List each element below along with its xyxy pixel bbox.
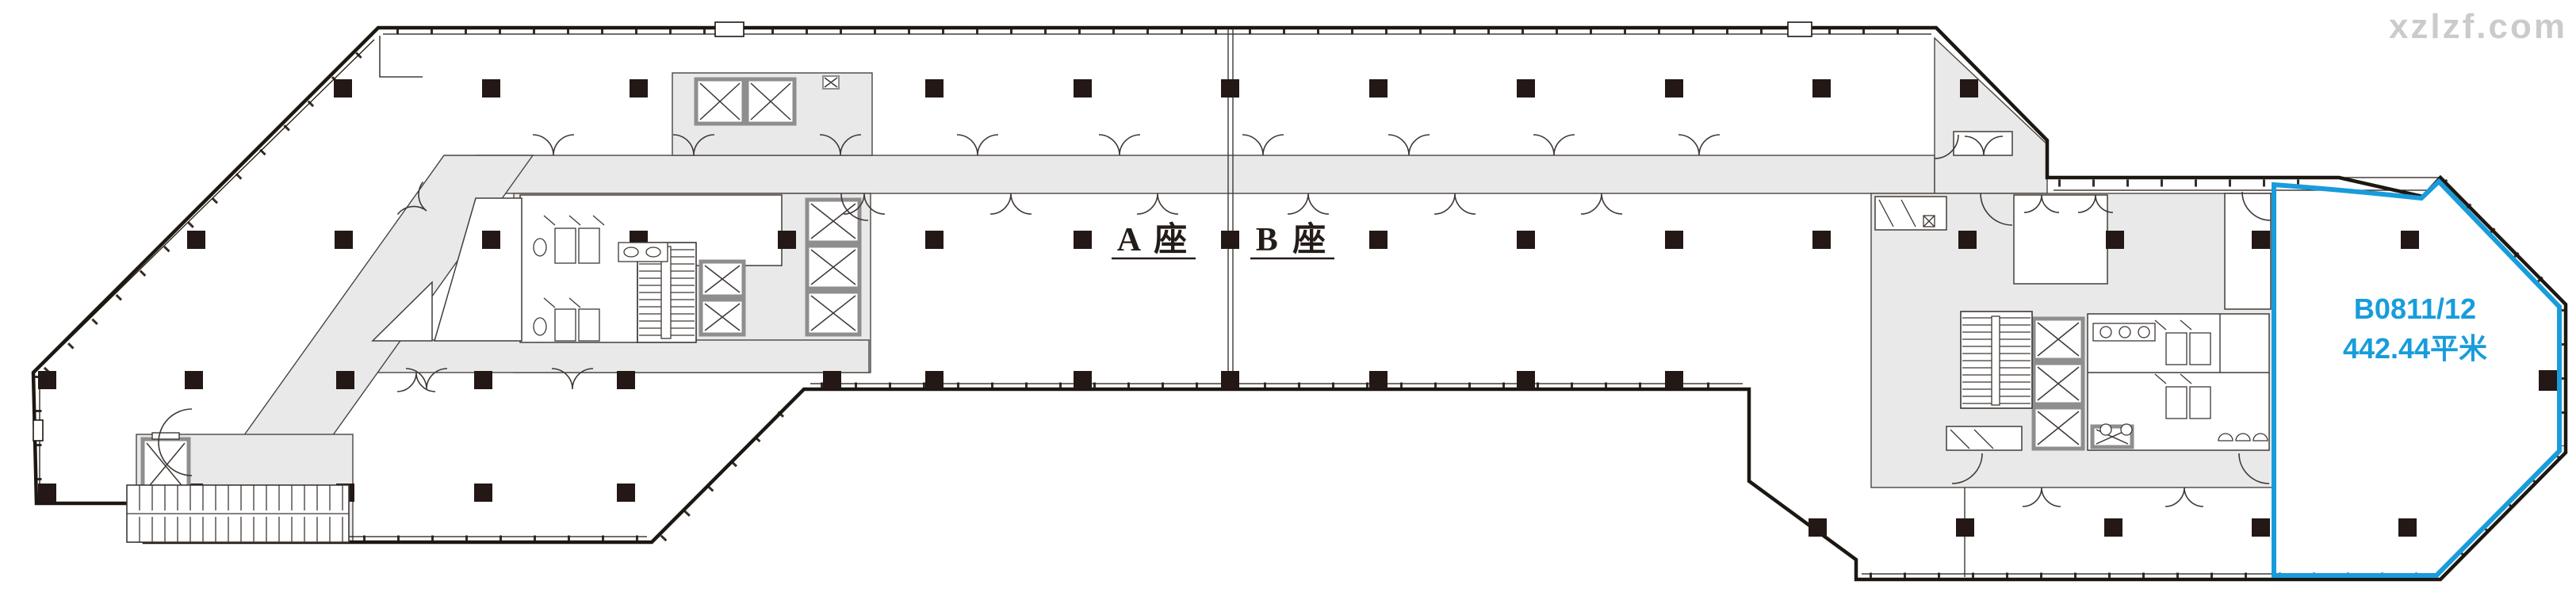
right-mid-room: [2014, 195, 2107, 284]
watermark: xzlzf.com: [2389, 7, 2567, 46]
unit-area-label: 442.44平米: [2343, 332, 2487, 365]
floor-plan-svg: B0811/12 442.44平米 A 座 B 座 xzlzf.com: [0, 0, 2576, 604]
block-b-label: B 座: [1256, 221, 1330, 258]
right-edge-room: [2225, 193, 2271, 309]
left-bottom-corridor: [333, 340, 869, 373]
block-a-label: A 座: [1117, 221, 1191, 258]
unit-id-label: B0811/12: [2354, 292, 2476, 325]
floor-plan: B0811/12 442.44平米 A 座 B 座 xzlzf.com: [0, 0, 2576, 604]
main-corridor: [476, 155, 1935, 193]
right-lobby: [1935, 38, 2047, 193]
right-storage-room: [1946, 426, 2022, 450]
